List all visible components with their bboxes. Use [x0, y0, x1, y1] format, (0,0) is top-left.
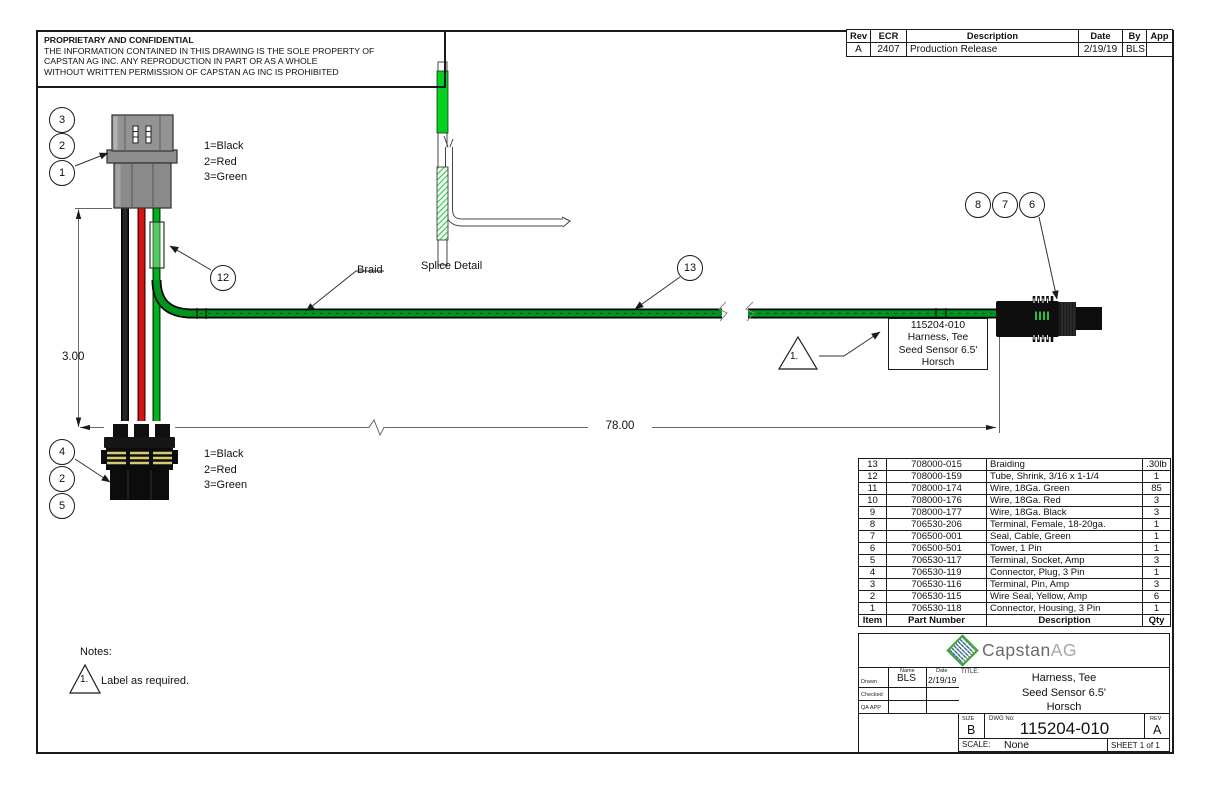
scale-value: None	[1004, 739, 1029, 751]
title-cell: TITLE: Harness, Tee Seed Sensor 6.5' Hor…	[959, 668, 1169, 714]
rev-value: A	[1153, 723, 1161, 737]
bom-row: 4706530-119Connector, Plug, 3 Pin1	[859, 567, 1171, 579]
bom-description: Terminal, Socket, Amp	[987, 555, 1143, 567]
by-value: BLS	[1123, 43, 1147, 57]
bom-item: 9	[859, 507, 887, 519]
bom-part-number-header: Part Number	[887, 615, 987, 627]
callout-line: Seed Sensor 6.5'	[889, 345, 987, 357]
bom-part-number: 708000-174	[887, 483, 987, 495]
revision-table: Rev ECR Description Date By App A 2407 P…	[846, 29, 1173, 57]
bom-row: 10708000-176Wire, 18Ga. Red3	[859, 495, 1171, 507]
right-connector	[996, 296, 1102, 342]
bom-item: 6	[859, 543, 887, 555]
proprietary-line: CAPSTAN AG INC. ANY REPRODUCTION IN PART…	[44, 56, 438, 67]
scale-cell: SCALE: None	[959, 739, 1107, 751]
bom-description: Braiding	[987, 459, 1143, 471]
bom-part-number: 706500-501	[887, 543, 987, 555]
part-callout-box: 115204-010 Harness, Tee Seed Sensor 6.5'…	[888, 318, 988, 370]
bom-header-row: ItemPart NumberDescriptionQty	[859, 615, 1171, 627]
capstan-logo-icon	[946, 634, 979, 667]
bom-row: 1706530-118Connector, Housing, 3 Pin1	[859, 603, 1171, 615]
legend-line: 3=Green	[204, 478, 247, 494]
dim-78in: 78.00	[588, 420, 652, 432]
dwg-no-cell: DWG No: 115204-010	[985, 714, 1145, 739]
description-header: Description	[907, 30, 1079, 43]
bom-part-number: 706530-117	[887, 555, 987, 567]
bom-description: Tower, 1 Pin	[987, 543, 1143, 555]
legend-line: 1=Black	[204, 139, 247, 155]
bom-row: 12708000-159Tube, Shrink, 3/16 x 1-1/41	[859, 471, 1171, 483]
ecr-header: ECR	[871, 30, 907, 43]
bom-qty: 3	[1143, 495, 1171, 507]
bom-description: Tube, Shrink, 3/16 x 1-1/4	[987, 471, 1143, 483]
braid-label: Braid	[357, 264, 383, 276]
logo-text-ag: AG	[1051, 640, 1077, 661]
bom-description-header: Description	[987, 615, 1143, 627]
bom-qty: 3	[1143, 579, 1171, 591]
legend-line: 2=Red	[204, 463, 247, 479]
checked-name-cell	[889, 688, 927, 701]
bom-part-number: 706530-115	[887, 591, 987, 603]
bom-item: 10	[859, 495, 887, 507]
date-column-label: Date	[936, 668, 948, 674]
bom-qty: 85	[1143, 483, 1171, 495]
bom-row: 7706500-001Seal, Cable, Green1	[859, 531, 1171, 543]
rev-header: Rev	[847, 30, 871, 43]
bom-item: 8	[859, 519, 887, 531]
date-value: 2/19/19	[1079, 43, 1123, 57]
notes-text: Label as required.	[101, 675, 189, 687]
sheet-cell: SHEET 1 of 1	[1107, 739, 1169, 751]
bom-part-number: 706530-116	[887, 579, 987, 591]
bom-row: 11708000-174Wire, 18Ga. Green85	[859, 483, 1171, 495]
bom-part-number: 706500-001	[887, 531, 987, 543]
engineering-drawing-page: PROPRIETARY AND CONFIDENTIAL THE INFORMA…	[0, 0, 1224, 792]
balloon-12: 12	[210, 265, 236, 291]
drawing-title-line3: Horsch	[959, 700, 1169, 715]
logo-text-capstan: Capstan	[982, 640, 1051, 661]
rev-label: REV	[1150, 716, 1161, 722]
ecr-value: 2407	[871, 43, 907, 57]
bom-qty: .30lb	[1143, 459, 1171, 471]
proprietary-line: THE INFORMATION CONTAINED IN THIS DRAWIN…	[44, 46, 438, 57]
size-value: B	[967, 723, 975, 737]
logo-cell: CapstanAG	[859, 634, 1169, 668]
balloon-5: 5	[49, 493, 75, 519]
bom-item: 3	[859, 579, 887, 591]
qa-label: QA APP	[861, 705, 881, 711]
by-header: By	[1123, 30, 1147, 43]
balloon-2: 2	[49, 133, 75, 159]
app-header: App	[1147, 30, 1173, 43]
bom-description: Wire Seal, Yellow, Amp	[987, 591, 1143, 603]
bom-description: Wire, 18Ga. Black	[987, 507, 1143, 519]
balloon-1: 1	[49, 160, 75, 186]
wire-legend-bottom: 1=Black 2=Red 3=Green	[204, 447, 247, 494]
approvals-block: Drawn Name BLS Date 2/19/19 Checked QA A…	[859, 668, 959, 752]
callout-part-number: 115204-010	[889, 320, 987, 332]
bom-row: 3706530-116Terminal, Pin, Amp3	[859, 579, 1171, 591]
app-value	[1147, 43, 1173, 57]
drawn-date: 2/19/19	[928, 675, 956, 685]
bom-item: 12	[859, 471, 887, 483]
balloon-4: 4	[49, 439, 75, 465]
qa-label-cell: QA APP	[859, 701, 889, 714]
rev-cell: REV A	[1145, 714, 1169, 739]
bom-part-number: 708000-176	[887, 495, 987, 507]
qa-date-cell	[927, 701, 959, 714]
drawn-date-cell: Date 2/19/19	[927, 668, 959, 688]
bom-qty: 1	[1143, 543, 1171, 555]
bom-part-number: 708000-015	[887, 459, 987, 471]
notes-title: Notes:	[80, 646, 112, 658]
notes-flag-number: 1.	[80, 674, 88, 685]
revision-header-row: Rev ECR Description Date By App	[847, 30, 1173, 43]
balloon-7: 7	[992, 192, 1018, 218]
bom-description: Connector, Housing, 3 Pin	[987, 603, 1143, 615]
drawn-label: Drawn	[861, 679, 877, 685]
bom-item: 1	[859, 603, 887, 615]
checked-label: Checked	[861, 692, 883, 698]
bom-qty: 1	[1143, 519, 1171, 531]
bom-qty: 3	[1143, 507, 1171, 519]
title-label: TITLE:	[961, 669, 979, 675]
bom-part-number: 708000-159	[887, 471, 987, 483]
bom-item-header: Item	[859, 615, 887, 627]
bom-item: 4	[859, 567, 887, 579]
drawn-label-cell: Drawn	[859, 668, 889, 688]
bom-row: 2706530-115Wire Seal, Yellow, Amp6	[859, 591, 1171, 603]
bom-part-number: 706530-118	[887, 603, 987, 615]
bottom-connector	[101, 421, 178, 500]
bom-row: 5706530-117Terminal, Socket, Amp3	[859, 555, 1171, 567]
bom-description: Wire, 18Ga. Green	[987, 483, 1143, 495]
legend-line: 2=Red	[204, 155, 247, 171]
legend-line: 1=Black	[204, 447, 247, 463]
splice-detail	[437, 62, 570, 265]
top-connector	[107, 115, 177, 208]
braid	[157, 280, 998, 321]
balloon-3: 3	[49, 107, 75, 133]
bom-row: 8706530-206Terminal, Female, 18-20ga.1	[859, 519, 1171, 531]
checked-label-cell: Checked	[859, 688, 889, 701]
bom-item: 13	[859, 459, 887, 471]
bom-item: 11	[859, 483, 887, 495]
size-label: SIZE	[962, 716, 974, 722]
balloon-2-bottom: 2	[49, 466, 75, 492]
qa-name-cell	[889, 701, 927, 714]
size-cell: SIZE B	[959, 714, 985, 739]
bom-part-number: 706530-206	[887, 519, 987, 531]
bom-item: 2	[859, 591, 887, 603]
bom-description: Terminal, Female, 18-20ga.	[987, 519, 1143, 531]
bom-row: 9708000-177Wire, 18Ga. Black3	[859, 507, 1171, 519]
dimension-arrows	[76, 210, 996, 431]
legend-line: 3=Green	[204, 170, 247, 186]
bom-description: Terminal, Pin, Amp	[987, 579, 1143, 591]
rev-value: A	[847, 43, 871, 57]
proprietary-title: PROPRIETARY AND CONFIDENTIAL	[44, 35, 438, 46]
dimension-lines	[75, 209, 1000, 437]
bom-qty: 1	[1143, 471, 1171, 483]
bom-row: 6706500-501Tower, 1 Pin1	[859, 543, 1171, 555]
date-header: Date	[1079, 30, 1123, 43]
bom-table: 13708000-015Braiding.30lb 12708000-159Tu…	[858, 458, 1171, 627]
bom-qty: 6	[1143, 591, 1171, 603]
sheet-value: SHEET 1 of 1	[1111, 741, 1160, 750]
proprietary-line: WITHOUT WRITTEN PERMISSION OF CAPSTAN AG…	[44, 67, 438, 78]
drawing-title-line1: Harness, Tee	[959, 671, 1169, 686]
revision-row: A 2407 Production Release 2/19/19 BLS	[847, 43, 1173, 57]
bom-description: Wire, 18Ga. Red	[987, 495, 1143, 507]
flag-number: 1.	[790, 351, 798, 362]
title-block: CapstanAG Drawn Name BLS Date 2/19/19 Ch…	[858, 633, 1170, 752]
callout-line: Harness, Tee	[889, 332, 987, 344]
bom-item: 5	[859, 555, 887, 567]
splice-detail-label: Splice Detail	[421, 260, 482, 272]
description-value: Production Release	[907, 43, 1079, 57]
bom-part-number: 706530-119	[887, 567, 987, 579]
bom-description: Connector, Plug, 3 Pin	[987, 567, 1143, 579]
drawn-name-cell: Name BLS	[889, 668, 927, 688]
wire-legend-top: 1=Black 2=Red 3=Green	[204, 139, 247, 186]
shrink-tube	[150, 222, 164, 268]
bom-qty: 1	[1143, 531, 1171, 543]
scale-label: SCALE:	[962, 740, 990, 749]
bom-qty: 3	[1143, 555, 1171, 567]
bom-qty: 1	[1143, 567, 1171, 579]
balloon-8: 8	[965, 192, 991, 218]
bom-description: Seal, Cable, Green	[987, 531, 1143, 543]
proprietary-notice: PROPRIETARY AND CONFIDENTIAL THE INFORMA…	[36, 30, 446, 88]
drawn-name: BLS	[897, 673, 916, 684]
checked-date-cell	[927, 688, 959, 701]
balloon-13: 13	[677, 255, 703, 281]
bom-row: 13708000-015Braiding.30lb	[859, 459, 1171, 471]
balloon-6: 6	[1019, 192, 1045, 218]
callout-line: Horsch	[889, 357, 987, 369]
dim-3in: 3.00	[62, 351, 84, 363]
bom-part-number: 708000-177	[887, 507, 987, 519]
dwg-no-label: DWG No:	[989, 716, 1015, 722]
bom-item: 7	[859, 531, 887, 543]
bom-qty: 1	[1143, 603, 1171, 615]
bom-qty-header: Qty	[1143, 615, 1171, 627]
drawing-title-line2: Seed Sensor 6.5'	[959, 686, 1169, 701]
